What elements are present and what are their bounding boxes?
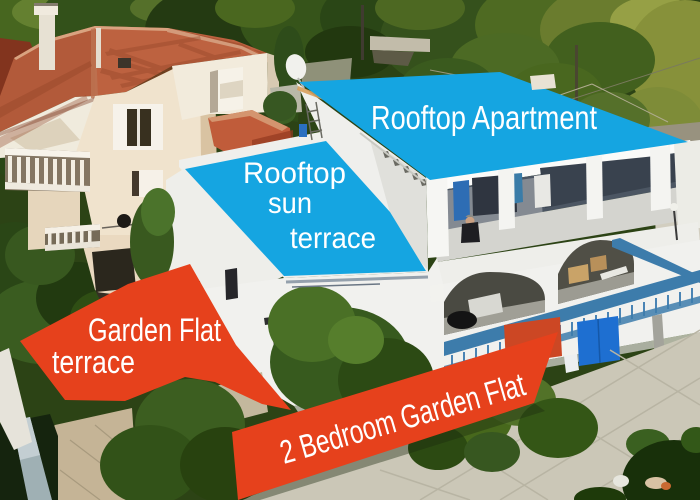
svg-text:Rooftop: Rooftop [243, 157, 346, 190]
svg-text:terrace: terrace [52, 344, 135, 380]
svg-text:Rooftop Apartment: Rooftop Apartment [371, 99, 597, 136]
svg-text:sun: sun [268, 187, 312, 220]
svg-text:Garden Flat: Garden Flat [88, 312, 221, 348]
svg-text:terrace: terrace [290, 222, 376, 255]
